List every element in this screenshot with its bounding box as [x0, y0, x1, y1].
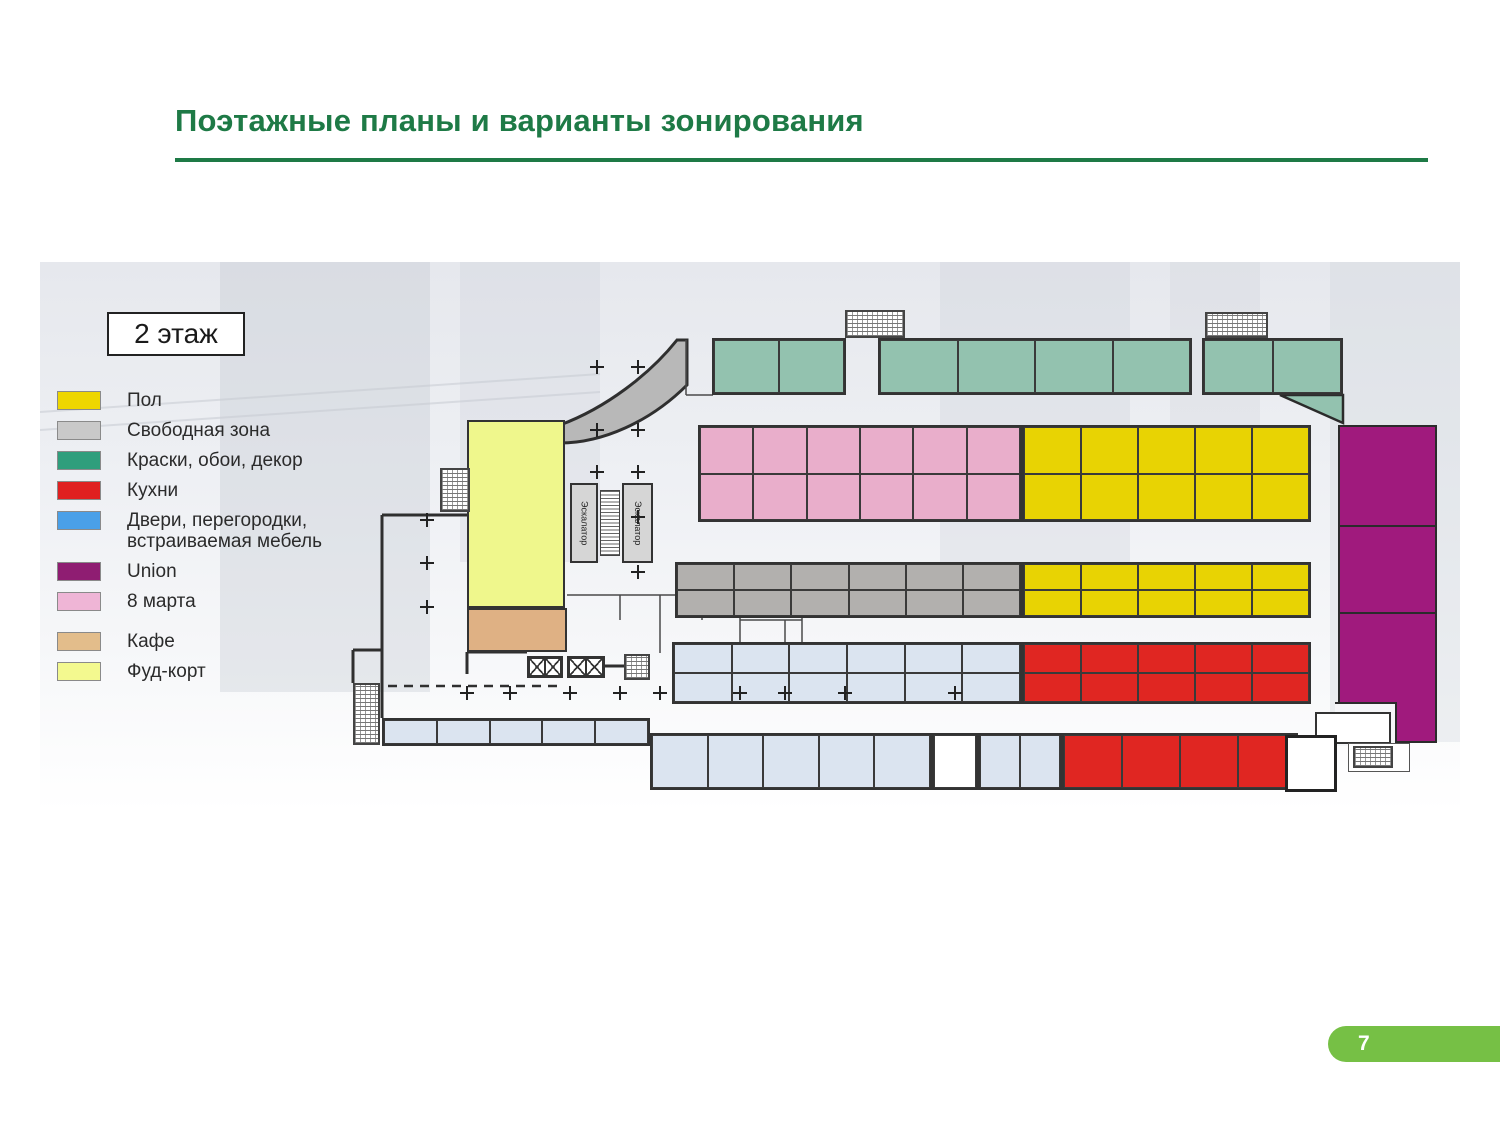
shop-cell	[542, 720, 595, 744]
title-underline	[175, 158, 1428, 162]
shop-cell	[1064, 735, 1122, 788]
shop-cell	[1024, 427, 1081, 474]
paints-zone-corner	[1280, 395, 1343, 423]
legend-label: 8 марта	[127, 591, 196, 612]
escalator-steps	[600, 490, 620, 556]
shop-cell	[849, 590, 906, 616]
shop-cell	[1195, 590, 1252, 616]
shop-cell	[967, 427, 1020, 474]
shop-cell	[490, 720, 543, 744]
floor-label: 2 этаж	[107, 312, 245, 356]
shop-cell	[1081, 590, 1138, 616]
shop-cell	[1195, 673, 1252, 702]
shop-cell	[677, 590, 734, 616]
foodcourt-zone	[467, 420, 565, 608]
shop-cell	[1195, 644, 1252, 673]
shop-cell	[753, 474, 806, 521]
page-number: 7	[1328, 1032, 1370, 1056]
shop-cell	[849, 564, 906, 590]
shop-cell	[913, 427, 966, 474]
shop-cell	[1252, 644, 1309, 673]
page-title: Поэтажные планы и варианты зонирования	[175, 103, 864, 139]
legend-label: Кухни	[127, 480, 178, 501]
zone-segment-blue	[382, 718, 650, 746]
shop-cell	[963, 564, 1020, 590]
legend-label: Фуд-корт	[127, 661, 206, 682]
elevator-icon	[586, 658, 603, 676]
shop-cell	[732, 644, 790, 673]
shop-cell	[714, 340, 779, 393]
zone-segment-blue	[978, 733, 1062, 790]
legend-label: Двери, перегородки, встраиваемая мебель	[127, 510, 372, 552]
stairwell-top-left	[440, 468, 470, 512]
shop-cell	[967, 474, 1020, 521]
shop-cell	[807, 474, 860, 521]
legend-label: Краски, обои, декор	[127, 450, 303, 471]
shop-cell	[734, 564, 791, 590]
zone-segment-white	[932, 733, 978, 790]
shop-cell	[1081, 644, 1138, 673]
shop-cell	[1024, 673, 1081, 702]
shop-cell	[789, 673, 847, 702]
shop-cell	[958, 340, 1036, 393]
legend-label: Пол	[127, 390, 162, 411]
stairwell-roof-right	[1205, 312, 1268, 338]
zone-segment-union	[1338, 425, 1437, 743]
shop-cell	[1035, 340, 1113, 393]
legend-swatch-blue	[57, 511, 101, 530]
legend-item-gray: Свободная зона	[57, 420, 387, 441]
shop-cell	[1020, 735, 1060, 788]
shop-cell	[384, 720, 437, 744]
shop-cell	[652, 735, 708, 788]
shop-cell	[1195, 564, 1252, 590]
shop-cell	[1138, 564, 1195, 590]
shop-cell	[1138, 673, 1195, 702]
slide: Поэтажные планы и варианты зонирования 2…	[0, 0, 1500, 1125]
legend: ПолСвободная зонаКраски, обои, декорКухн…	[57, 390, 387, 691]
stairwell-left-edge	[353, 683, 380, 745]
stairwell-roof-left	[845, 310, 905, 338]
shop-cell	[1024, 644, 1081, 673]
shop-cell	[1138, 644, 1195, 673]
shop-cell	[905, 673, 963, 702]
shop-cell	[980, 735, 1020, 788]
shop-cell	[734, 590, 791, 616]
shop-cell	[1081, 564, 1138, 590]
shop-cell	[1138, 427, 1195, 474]
shop-cell	[963, 590, 1020, 616]
zone-segment-pink	[698, 425, 1022, 522]
shop-cell	[1252, 590, 1309, 616]
shop-cell	[791, 590, 848, 616]
elevator-icon	[569, 658, 586, 676]
shop-cell	[1024, 590, 1081, 616]
shop-cell	[847, 644, 905, 673]
shop-cell	[1252, 427, 1309, 474]
shop-cell	[1081, 474, 1138, 521]
shop-cell	[905, 644, 963, 673]
shop-cell	[906, 564, 963, 590]
zone-segment-yellow	[1022, 562, 1311, 618]
legend-swatch-yellow	[57, 391, 101, 410]
shop-cell	[1138, 590, 1195, 616]
shop-cell	[934, 735, 976, 788]
shop-cell	[860, 474, 913, 521]
legend-item-union: Union	[57, 561, 387, 582]
legend-item-blue: Двери, перегородки, встраиваемая мебель	[57, 510, 387, 552]
shop-cell	[819, 735, 875, 788]
shop-cell	[1195, 427, 1252, 474]
zone-segment-green	[712, 338, 846, 395]
escalator-label: Эскалатор	[580, 501, 589, 545]
floor-plan-area: 2 этаж ПолСвободная зонаКраски, обои, де…	[40, 262, 1460, 812]
shop-cell	[595, 720, 648, 744]
legend-swatch-foodcourt	[57, 662, 101, 681]
shop-cell	[906, 590, 963, 616]
shop-cell	[700, 427, 753, 474]
legend-label: Свободная зона	[127, 420, 270, 441]
shop-cell	[674, 644, 732, 673]
shop-cell	[732, 673, 790, 702]
elevator-icon	[529, 658, 545, 676]
zone-segment-gray	[675, 562, 1022, 618]
shop-cell	[677, 564, 734, 590]
shop-cell	[1180, 735, 1238, 788]
stairwell	[624, 654, 650, 680]
page-number-badge: 7	[1328, 1026, 1500, 1062]
zone-segment-red	[1062, 733, 1298, 790]
escalator-left: Эскалатор	[570, 483, 598, 563]
shop-cell	[807, 427, 860, 474]
shop-cell	[847, 673, 905, 702]
shop-cell	[791, 564, 848, 590]
union-divider	[1340, 612, 1435, 614]
legend-item-foodcourt: Фуд-корт	[57, 661, 387, 682]
legend-swatch-gray	[57, 421, 101, 440]
free-zone-shape	[560, 340, 687, 443]
shop-cell	[1195, 474, 1252, 521]
stairwell-bottom-right	[1353, 746, 1393, 768]
elevator-icon	[545, 658, 561, 676]
legend-swatch-red	[57, 481, 101, 500]
zone-segment-yellow	[1022, 425, 1311, 522]
exit-vestibule	[1285, 735, 1337, 792]
shop-cell	[913, 474, 966, 521]
legend-item-red: Кухни	[57, 480, 387, 501]
zone-segment-blue	[650, 733, 932, 790]
zone-segment-green	[1202, 338, 1343, 395]
legend-label: Union	[127, 561, 177, 582]
shop-cell	[1024, 564, 1081, 590]
shop-cell	[789, 644, 847, 673]
legend-swatch-green	[57, 451, 101, 470]
elevator-bank	[567, 656, 605, 678]
union-divider	[1340, 525, 1435, 527]
elevator-bank	[527, 656, 563, 678]
shop-cell	[1138, 474, 1195, 521]
zone-segment-green	[878, 338, 1192, 395]
shop-cell	[880, 340, 958, 393]
legend-item-green: Краски, обои, декор	[57, 450, 387, 471]
escalator-label: Эскалатор	[633, 501, 642, 545]
shop-cell	[1122, 735, 1180, 788]
shop-cell	[1081, 427, 1138, 474]
legend-item-cafe: Кафе	[57, 631, 387, 652]
shop-cell	[1204, 340, 1273, 393]
shop-cell	[437, 720, 490, 744]
escalator-right: Эскалатор	[622, 483, 653, 563]
legend-label: Кафе	[127, 631, 175, 652]
legend-swatch-cafe	[57, 632, 101, 651]
shop-cell	[1252, 474, 1309, 521]
shop-cell	[874, 735, 930, 788]
shop-cell	[962, 673, 1020, 702]
legend-item-pink: 8 марта	[57, 591, 387, 612]
shop-cell	[674, 673, 732, 702]
shop-cell	[700, 474, 753, 521]
shop-cell	[1081, 673, 1138, 702]
zone-segment-red	[1022, 642, 1311, 704]
shop-cell	[962, 644, 1020, 673]
shop-cell	[1252, 564, 1309, 590]
shop-cell	[1024, 474, 1081, 521]
shop-cell	[753, 427, 806, 474]
shop-cell	[1273, 340, 1342, 393]
shop-cell	[1113, 340, 1191, 393]
shop-cell	[779, 340, 844, 393]
legend-item-yellow: Пол	[57, 390, 387, 411]
zone-segment-blue	[672, 642, 1022, 704]
shop-cell	[763, 735, 819, 788]
legend-swatch-pink	[57, 592, 101, 611]
shop-cell	[708, 735, 764, 788]
shop-cell	[860, 427, 913, 474]
cafe-zone	[467, 608, 567, 652]
shop-cell	[1252, 673, 1309, 702]
legend-swatch-union	[57, 562, 101, 581]
